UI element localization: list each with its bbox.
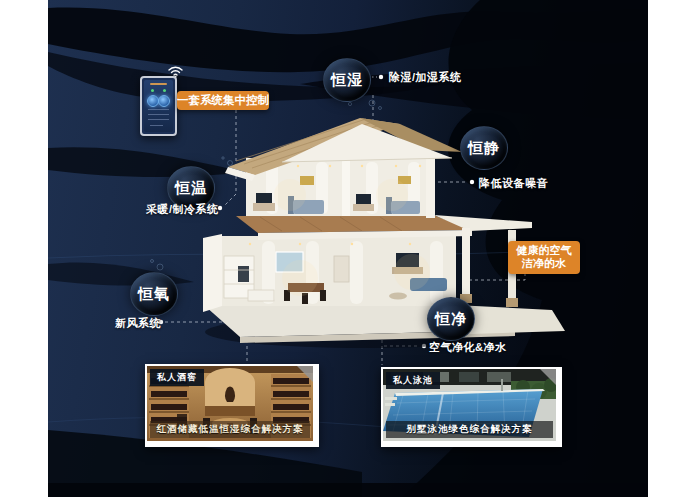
highlight-box-central-control: 一套系统集中控制 bbox=[177, 91, 269, 110]
badge-hengyang: 恒氧 bbox=[130, 272, 178, 316]
label-dehumidify-system: 除湿/加湿系统 bbox=[389, 70, 462, 85]
left-margin bbox=[0, 0, 48, 497]
pool-photo: 私人泳池 别墅泳池绿色综合解决方案 bbox=[383, 369, 556, 441]
control-panel-screen bbox=[144, 80, 173, 132]
label-heating-cooling-system: 采暖/制冷系统 bbox=[146, 202, 219, 217]
card-caption-pool: 别墅泳池绿色综合解决方案 bbox=[386, 421, 553, 438]
highlight-healthy-line2: 洁净的水 bbox=[508, 257, 580, 270]
control-panel-icon bbox=[140, 76, 177, 136]
card-tag-wine-cellar: 私人酒窖 bbox=[150, 369, 204, 386]
highlight-healthy-line1: 健康的空气 bbox=[508, 244, 580, 257]
label-air-water-purification: 空气净化&净水 bbox=[429, 340, 506, 355]
label-fresh-air-system: 新风系统 bbox=[115, 316, 161, 331]
photo-corner-ribbon bbox=[297, 366, 313, 382]
poster-canvas: 一套系统集中控制 健康的空气 洁净的水 恒湿 除湿/加湿系统 恒静 降低设备噪音… bbox=[48, 0, 648, 497]
right-margin bbox=[648, 0, 700, 497]
wine-cellar-photo: . bbox=[147, 366, 313, 441]
label-noise-reduction: 降低设备噪音 bbox=[479, 176, 548, 191]
card-private-pool: 私人泳池 别墅泳池绿色综合解决方案 bbox=[381, 367, 562, 447]
highlight-box-healthy-air-water: 健康的空气 洁净的水 bbox=[508, 241, 580, 274]
card-caption-wine-cellar: 红酒储藏低温恒湿综合解决方案 bbox=[150, 421, 310, 438]
card-private-wine-cellar: . bbox=[145, 364, 319, 447]
card-tag-pool: 私人泳池 bbox=[386, 372, 440, 389]
badge-hengshi: 恒湿 bbox=[323, 58, 371, 102]
photo-corner-ribbon bbox=[540, 369, 556, 385]
badge-hengjin: 恒净 bbox=[427, 297, 475, 341]
badge-hengjing: 恒静 bbox=[460, 126, 508, 170]
infographic-poster: 一套系统集中控制 健康的空气 洁净的水 恒湿 除湿/加湿系统 恒静 降低设备噪音… bbox=[0, 0, 700, 497]
